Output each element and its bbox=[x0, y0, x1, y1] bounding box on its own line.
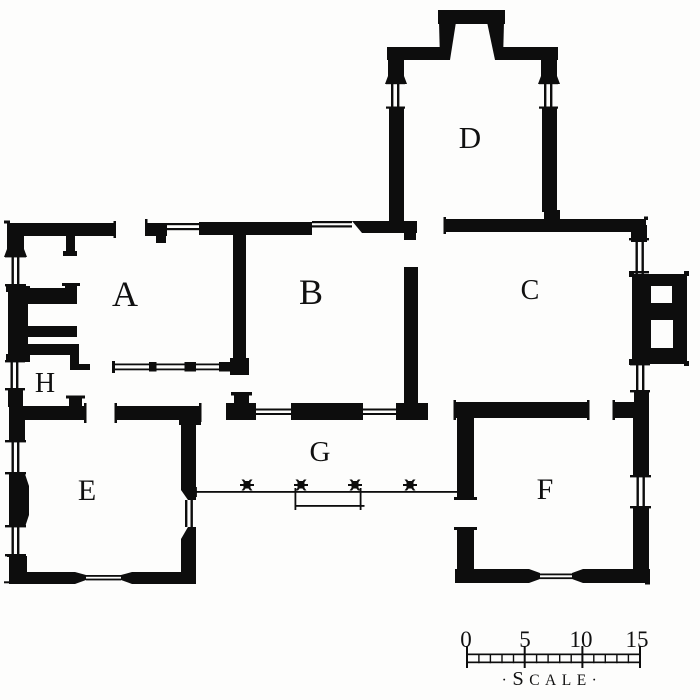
svg-text:15: 15 bbox=[626, 627, 649, 652]
svg-text:F: F bbox=[537, 473, 554, 506]
svg-text:A: A bbox=[112, 274, 138, 314]
svg-text:D: D bbox=[459, 120, 481, 155]
svg-text:H: H bbox=[35, 368, 55, 399]
svg-text:B: B bbox=[299, 272, 323, 312]
svg-text:C: C bbox=[521, 275, 540, 306]
svg-text:10: 10 bbox=[570, 627, 593, 652]
svg-text:E: E bbox=[78, 474, 96, 507]
svg-text:G: G bbox=[310, 436, 331, 468]
svg-text:·SCALE·: ·SCALE· bbox=[502, 668, 603, 690]
